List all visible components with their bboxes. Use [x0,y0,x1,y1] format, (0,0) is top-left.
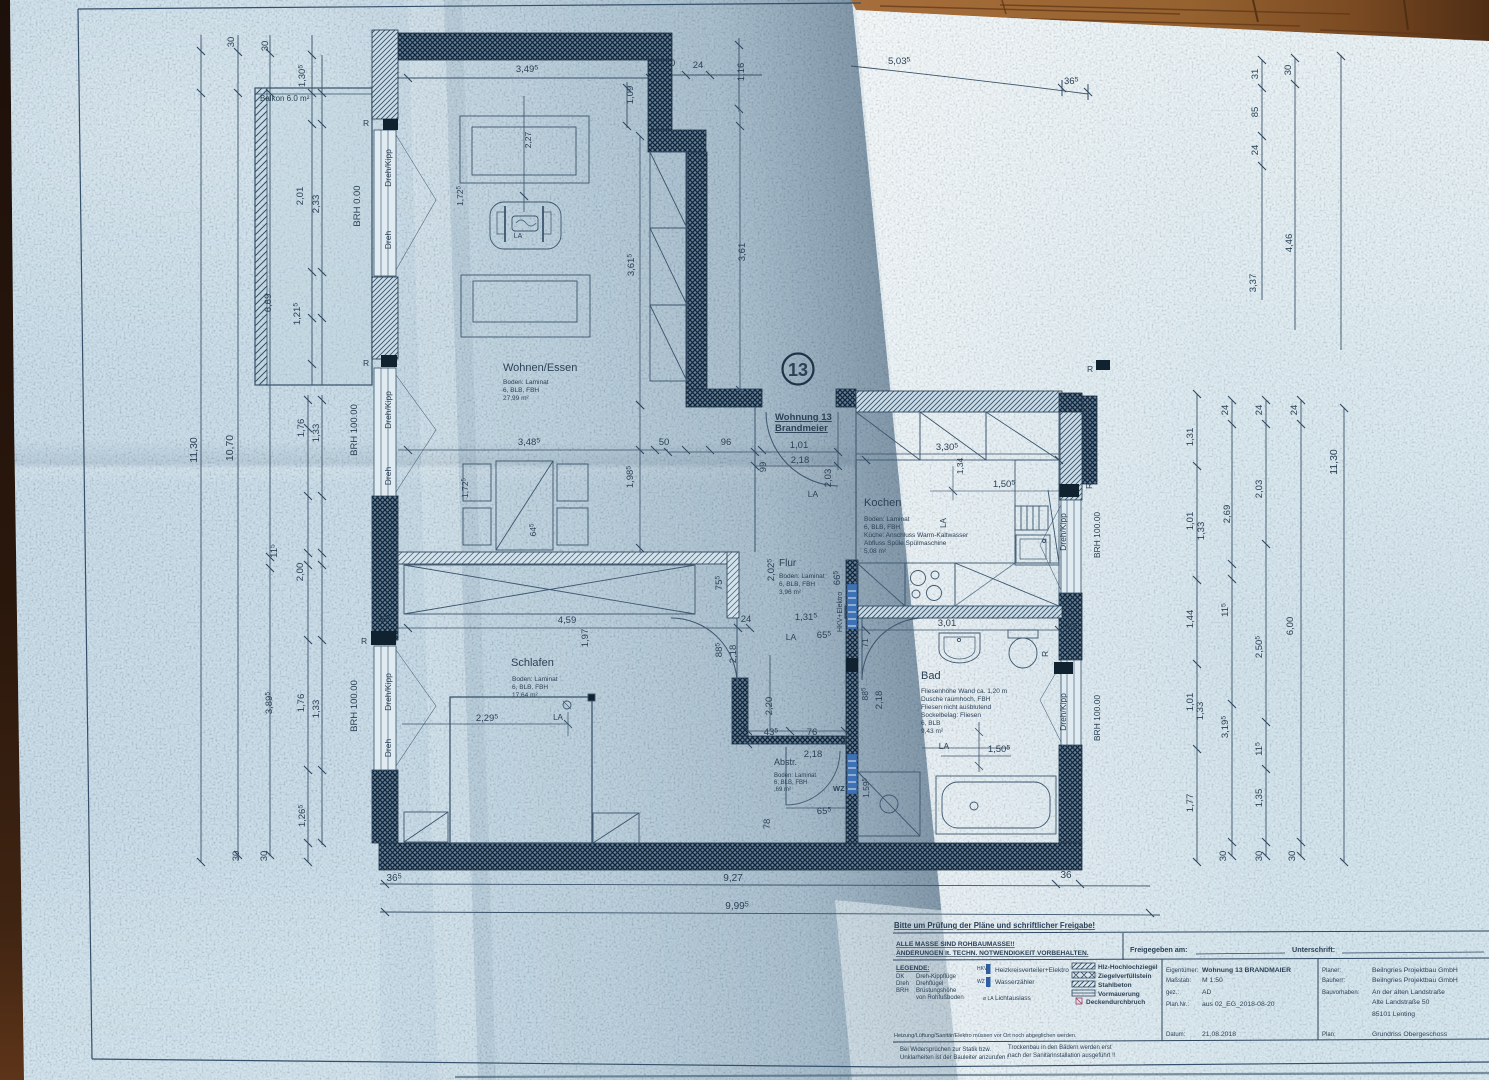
svg-text:Bei Widersprüchen zur Statik b: Bei Widersprüchen zur Statik bzw. [900,1047,991,1053]
svg-text:1,09: 1,09 [625,86,636,105]
svg-text:2,18: 2,18 [874,691,885,710]
svg-text:Heizkreisverteiler+Elektro: Heizkreisverteiler+Elektro [995,967,1069,974]
svg-text:Boden: Laminat: Boden: Laminat [503,379,549,386]
svg-text:2,20: 2,20 [764,697,775,716]
svg-text:30: 30 [1287,851,1298,862]
svg-text:Balkon 6.0 m²: Balkon 6.0 m² [260,94,310,103]
svg-text:6, BLB, FBH: 6, BLB, FBH [503,387,539,394]
svg-text:Wasserzähler: Wasserzähler [995,979,1035,986]
svg-text:2,01: 2,01 [295,187,306,206]
svg-text:Heizung/Lüftung/Sanitär/Elektr: Heizung/Lüftung/Sanitär/Elektro müssen v… [894,1033,1077,1039]
svg-text:HKV: HKV [977,966,988,972]
svg-text:Vormauerung: Vormauerung [1098,991,1140,998]
svg-text:Beilngries Projektbau GmbH: Beilngries Projektbau GmbH [1372,977,1458,984]
svg-text:27,99 m²: 27,99 m² [503,395,529,402]
svg-text:24: 24 [693,60,704,71]
svg-text:1,35: 1,35 [1254,789,1265,808]
svg-text:Planer:: Planer: [1322,968,1341,974]
svg-text:Grundriss Obergeschoss: Grundriss Obergeschoss [1372,1031,1448,1038]
svg-text:Küche: Anschluss Warm-Kaltwass: Küche: Anschluss Warm-Kaltwasser [864,532,969,539]
svg-text:Plan.Nr.:: Plan.Nr.: [1166,1002,1189,1008]
svg-text:1,44: 1,44 [1185,610,1196,629]
svg-text:85101 Lenting: 85101 Lenting [1372,1011,1415,1018]
svg-text:Dreh/Kipp: Dreh/Kipp [1058,513,1068,551]
svg-text:Brandmeier: Brandmeier [775,423,828,434]
svg-text:1,97: 1,97 [580,629,591,648]
svg-text:ÄNDERUNGEN lt. TECHN. NOTWENDI: ÄNDERUNGEN lt. TECHN. NOTWENDIGKEIT VORB… [896,949,1089,957]
svg-text:Boden: Laminat: Boden: Laminat [779,573,825,580]
svg-text:1,01: 1,01 [1185,512,1196,531]
svg-text:,69 m²: ,69 m² [774,787,791,793]
svg-text:WZ: WZ [977,979,985,985]
svg-text:50: 50 [659,437,670,448]
svg-text:1,33: 1,33 [1196,522,1207,541]
svg-text:BRH 100.00: BRH 100.00 [1092,695,1102,742]
svg-text:11,30: 11,30 [1328,449,1340,475]
svg-text:Brüstungshöhe: Brüstungshöhe [916,988,957,994]
svg-text:13: 13 [788,360,808,380]
svg-text:Beilngries Projektbau GmbH: Beilngries Projektbau GmbH [1372,967,1458,974]
svg-text:78: 78 [762,819,773,830]
svg-text:4,46: 4,46 [1284,234,1295,253]
svg-text:von Rohfußboden: von Rohfußboden [916,995,964,1001]
svg-text:6,69: 6,69 [263,294,274,313]
svg-text:Bad: Bad [921,670,941,682]
svg-text:BRH 100.00: BRH 100.00 [349,680,360,732]
svg-text:3,01: 3,01 [938,618,957,629]
svg-text:Datum:: Datum: [1166,1032,1186,1038]
svg-text:Boden: Laminat: Boden: Laminat [774,773,816,779]
svg-text:Bitte um Prüfung der Pläne und: Bitte um Prüfung der Pläne und schriftli… [894,921,1095,930]
svg-text:30: 30 [1283,65,1294,76]
svg-text:Dreh: Dreh [383,739,393,758]
svg-text:Fliesen nicht ausblutend: Fliesen nicht ausblutend [921,704,991,711]
svg-text:WZ: WZ [833,784,845,793]
svg-text:Schlafen: Schlafen [511,657,554,669]
svg-text:BRH 100.00: BRH 100.00 [349,404,360,456]
svg-text:Alte Landstraße 50: Alte Landstraße 50 [1372,999,1430,1006]
svg-text:Dreh/Kipp: Dreh/Kipp [1058,693,1068,731]
svg-text:36: 36 [1060,870,1072,881]
svg-text:1,77: 1,77 [1185,794,1196,813]
svg-text:Eigentümer:: Eigentümer: [1166,968,1199,974]
svg-text:LEGENDE:: LEGENDE: [896,965,930,972]
svg-text:6,00: 6,00 [1285,617,1296,636]
svg-text:Kochen: Kochen [864,497,901,509]
svg-text:R: R [363,118,369,128]
svg-text:gez.:: gez.: [1166,990,1179,996]
svg-text:Maßstab:: Maßstab: [1166,978,1191,984]
svg-text:6, BLB, FBH: 6, BLB, FBH [864,524,900,531]
svg-text:ø LA: ø LA [983,996,994,1002]
svg-text:Fliesenhöhe Wand ca. 1,20 m: Fliesenhöhe Wand ca. 1,20 m [921,688,1007,695]
svg-text:DK: DK [896,974,904,980]
svg-text:10,70: 10,70 [224,435,236,461]
svg-text:2,18: 2,18 [728,645,739,664]
svg-text:Boden: Laminat: Boden: Laminat [864,516,910,523]
svg-text:R: R [361,636,367,646]
svg-text:HKV+Elektro: HKV+Elektro [837,592,844,632]
svg-text:76: 76 [807,727,818,738]
svg-text:An der alten Landstraße: An der alten Landstraße [1372,989,1445,996]
svg-text:1,31: 1,31 [1185,428,1196,447]
svg-text:Unklarheiten ist der Bauleiter: Unklarheiten ist der Bauleiter anzurufen… [900,1055,1009,1061]
svg-text:30: 30 [260,41,271,52]
svg-text:R: R [1087,364,1093,374]
svg-text:1,76: 1,76 [296,419,307,438]
svg-text:Bauherr:: Bauherr: [1322,978,1345,984]
svg-text:Dreh/Kipp: Dreh/Kipp [383,149,393,187]
svg-text:24: 24 [741,614,752,625]
svg-text:6, BLB, FBH: 6, BLB, FBH [512,684,548,691]
svg-text:LA: LA [786,632,797,642]
svg-text:6, BLB, FBH: 6, BLB, FBH [774,780,807,786]
svg-text:Abfluss Spüle Spülmaschine: Abfluss Spüle Spülmaschine [864,540,947,547]
svg-text:Hlz-Hochlochziegel: Hlz-Hochlochziegel [1098,964,1158,971]
svg-text:Flur: Flur [779,558,797,569]
svg-text:30: 30 [259,851,270,862]
svg-text:AD: AD [1202,989,1212,996]
svg-text:2,03: 2,03 [823,469,834,488]
svg-text:2,03: 2,03 [1254,480,1265,499]
svg-text:1,34: 1,34 [955,457,965,474]
svg-text:6, BLB: 6, BLB [921,720,941,727]
svg-text:nach der Sanitärinstallation a: nach der Sanitärinstallation ausgeführt … [1008,1053,1116,1059]
svg-text:30: 30 [231,851,242,862]
svg-text:Bauvorhaben:: Bauvorhaben: [1322,990,1360,996]
svg-text:LA: LA [808,489,819,499]
svg-text:Wohnung 13 BRANDMAIER: Wohnung 13 BRANDMAIER [1202,967,1291,974]
svg-text:9,43 m²: 9,43 m² [921,728,944,735]
svg-text:Wohnen/Essen: Wohnen/Essen [503,362,577,374]
svg-text:LA: LA [514,233,523,240]
svg-text:Trockenbau in den Bädern werde: Trockenbau in den Bädern werden erst [1008,1045,1112,1051]
svg-text:Sockelbelag: Fliesen: Sockelbelag: Fliesen [921,712,981,719]
svg-text:LA: LA [939,517,948,527]
svg-text:1,33: 1,33 [1195,702,1206,721]
svg-text:BRH: BRH [896,988,909,994]
svg-text:96: 96 [721,437,732,448]
svg-text:ALLE MASSE SIND ROHBAUMASSE!!: ALLE MASSE SIND ROHBAUMASSE!! [896,941,1015,948]
svg-text:Dreh/Kipp: Dreh/Kipp [383,673,393,711]
svg-text:24: 24 [1254,405,1265,416]
svg-text:Dusche raumhoch, FBH: Dusche raumhoch, FBH [921,696,991,703]
svg-text:Drehflügel: Drehflügel [916,981,943,987]
svg-text:Plan:: Plan: [1322,1032,1336,1038]
svg-text:6, BLB, FBH: 6, BLB, FBH [779,581,815,588]
svg-text:LA: LA [553,713,563,722]
svg-text:17,64 m²: 17,64 m² [512,692,538,699]
svg-text:Abstr.: Abstr. [774,757,797,767]
svg-text:2,18: 2,18 [791,455,810,466]
svg-text:Dreh/Kipp: Dreh/Kipp [383,391,393,429]
svg-text:Unterschrift:: Unterschrift: [1292,945,1335,954]
svg-text:Wohnung 13: Wohnung 13 [775,412,832,423]
svg-text:31: 31 [1250,69,1261,80]
svg-text:3,96 m²: 3,96 m² [779,589,802,596]
svg-text:9,27: 9,27 [723,873,743,884]
svg-text:Dreh: Dreh [383,467,393,486]
svg-text:4,59: 4,59 [558,615,577,626]
svg-text:11,30: 11,30 [188,437,200,463]
svg-text:Dreh: Dreh [383,231,393,250]
svg-text:1,33: 1,33 [311,700,322,719]
svg-text:1,01: 1,01 [790,440,809,451]
svg-text:24: 24 [1289,405,1300,416]
svg-text:21.08.2018: 21.08.2018 [1202,1031,1236,1038]
svg-text:Ziegelverfüllstein: Ziegelverfüllstein [1098,973,1151,980]
svg-text:Dreh: Dreh [896,981,909,987]
svg-text:2,69: 2,69 [1222,505,1233,524]
svg-text:R: R [1040,651,1050,657]
svg-text:24: 24 [1250,145,1261,156]
svg-text:3,61: 3,61 [737,243,748,262]
svg-text:71: 71 [860,638,870,648]
svg-text:aus 02_EG_2018-08-20: aus 02_EG_2018-08-20 [1202,1001,1275,1008]
svg-text:1,16: 1,16 [736,63,747,82]
svg-text:24: 24 [1220,405,1231,416]
svg-text:30: 30 [1254,851,1265,862]
svg-text:2,33: 2,33 [311,195,322,214]
svg-text:85: 85 [1250,107,1261,118]
svg-text:99: 99 [758,462,769,473]
svg-text:2,00: 2,00 [295,563,306,582]
svg-text:R: R [1084,483,1094,489]
svg-text:5,08 m²: 5,08 m² [864,548,887,555]
svg-text:2,27: 2,27 [523,131,533,148]
svg-text:3,37: 3,37 [1248,274,1259,293]
svg-text:30: 30 [226,37,237,48]
svg-text:Dreh-Kippflüge: Dreh-Kippflüge [916,974,957,980]
svg-text:R: R [363,358,369,368]
svg-text:1,76: 1,76 [296,694,307,713]
svg-text:Lichtauslass: Lichtauslass [995,995,1032,1002]
svg-text:Boden: Laminat: Boden: Laminat [512,676,558,683]
svg-text:30: 30 [1218,851,1229,862]
svg-text:BRH 100.00: BRH 100.00 [1092,512,1102,559]
svg-text:Deckendurchbruch: Deckendurchbruch [1086,999,1145,1006]
svg-text:Freigegeben am:: Freigegeben am: [1130,945,1188,954]
svg-text:1,33: 1,33 [311,424,322,443]
svg-text:LA: LA [939,741,950,751]
svg-text:BRH 0.00: BRH 0.00 [352,185,363,226]
svg-text:2,18: 2,18 [804,749,823,760]
svg-text:M 1:50: M 1:50 [1202,977,1223,984]
svg-text:Stahlbeton: Stahlbeton [1098,982,1132,989]
